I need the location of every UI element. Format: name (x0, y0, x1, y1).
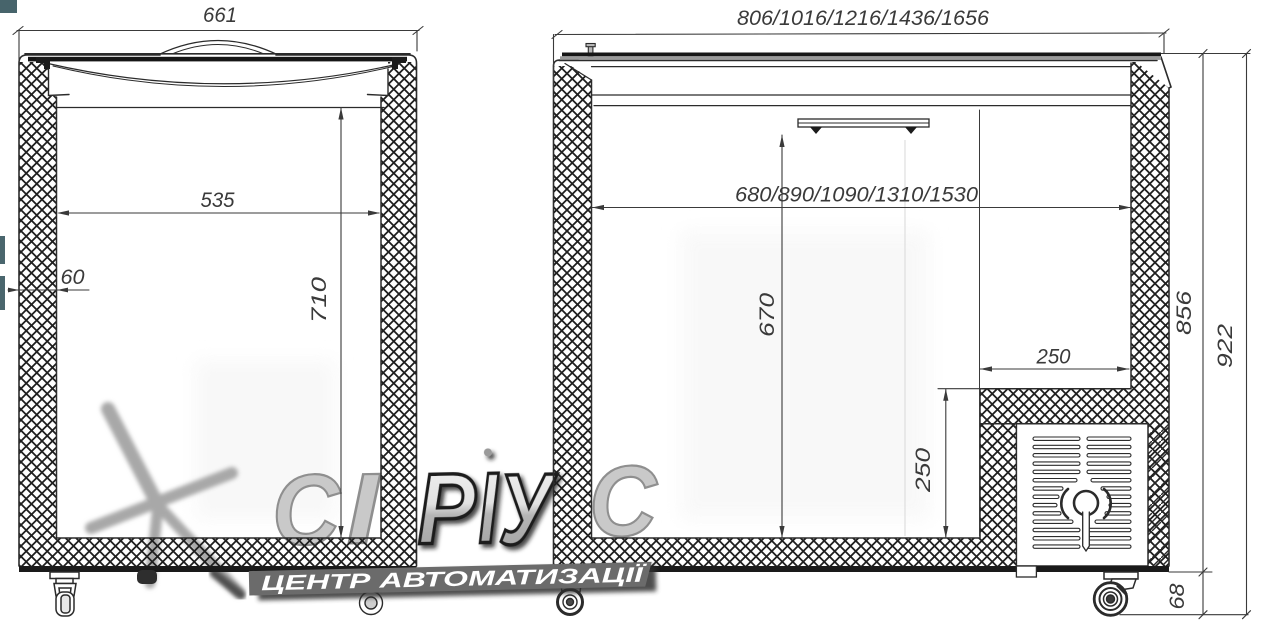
svg-text:60: 60 (61, 266, 85, 289)
svg-text:250: 250 (912, 448, 935, 494)
svg-text:670: 670 (756, 293, 779, 337)
svg-text:922: 922 (1214, 324, 1237, 368)
svg-text:856: 856 (1173, 291, 1196, 335)
svg-text:806/1016/1216/1436/1656: 806/1016/1216/1436/1656 (737, 7, 989, 30)
svg-text:250: 250 (1036, 346, 1071, 369)
svg-text:У: У (497, 453, 560, 566)
svg-text:535: 535 (201, 189, 235, 212)
svg-text:68: 68 (1166, 583, 1189, 609)
svg-text:661: 661 (203, 4, 237, 27)
svg-text:Р: Р (416, 453, 478, 566)
svg-text:680/890/1090/1310/1530: 680/890/1090/1310/1530 (735, 184, 978, 207)
svg-text:710: 710 (308, 277, 331, 323)
